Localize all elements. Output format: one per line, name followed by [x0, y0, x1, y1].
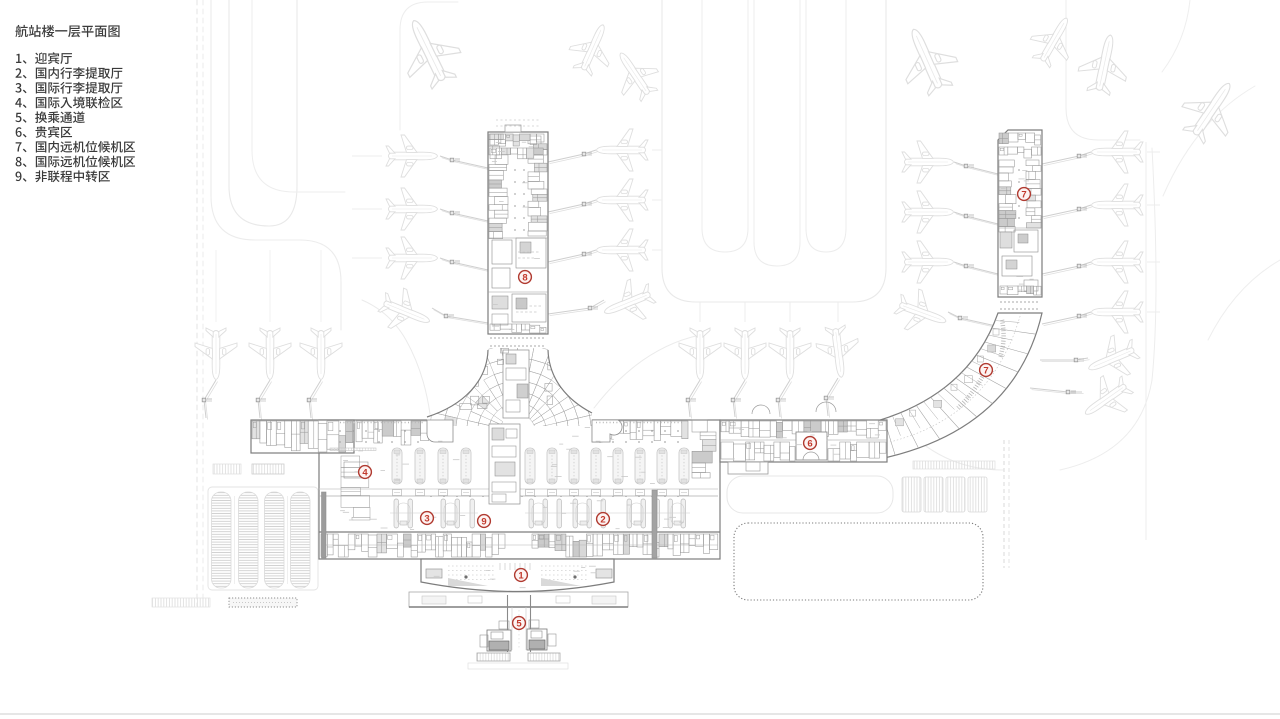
svg-text:1: 1 [518, 570, 524, 581]
svg-text:5: 5 [516, 618, 522, 629]
svg-text:7: 7 [983, 365, 988, 376]
svg-text:9: 9 [481, 516, 486, 527]
svg-text:4: 4 [362, 467, 368, 478]
svg-text:3: 3 [424, 513, 429, 524]
svg-text:7: 7 [1021, 189, 1026, 200]
svg-text:2: 2 [600, 514, 605, 525]
svg-text:8: 8 [522, 272, 527, 283]
svg-text:6: 6 [807, 438, 812, 449]
